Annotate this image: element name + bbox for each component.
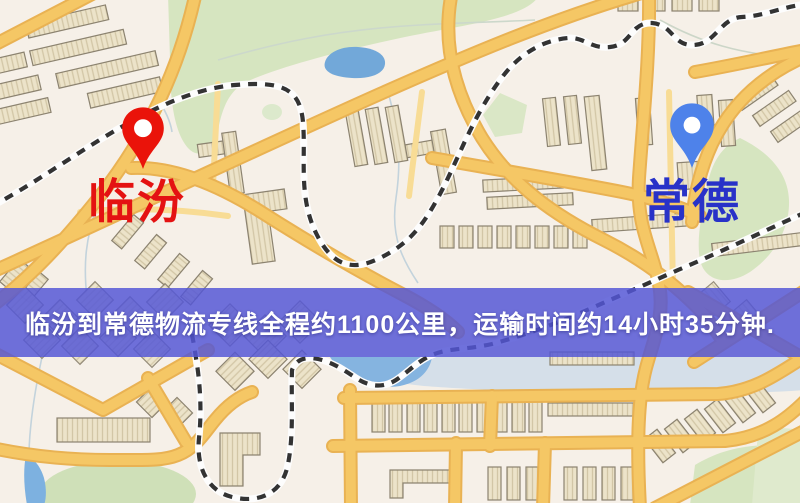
- map-canvas: 临汾 常德 临汾到常德物流专线全程约1100公里，运输时间约14小时35分钟.: [0, 0, 800, 503]
- route-info-text: 临汾到常德物流专线全程约1100公里，运输时间约14小时35分钟.: [0, 305, 775, 341]
- map-art: [0, 0, 800, 503]
- destination-city-label: 常德: [643, 178, 741, 225]
- origin-city-label: 临汾: [88, 178, 186, 225]
- route-info-banner: 临汾到常德物流专线全程约1100公里，运输时间约14小时35分钟.: [0, 288, 800, 357]
